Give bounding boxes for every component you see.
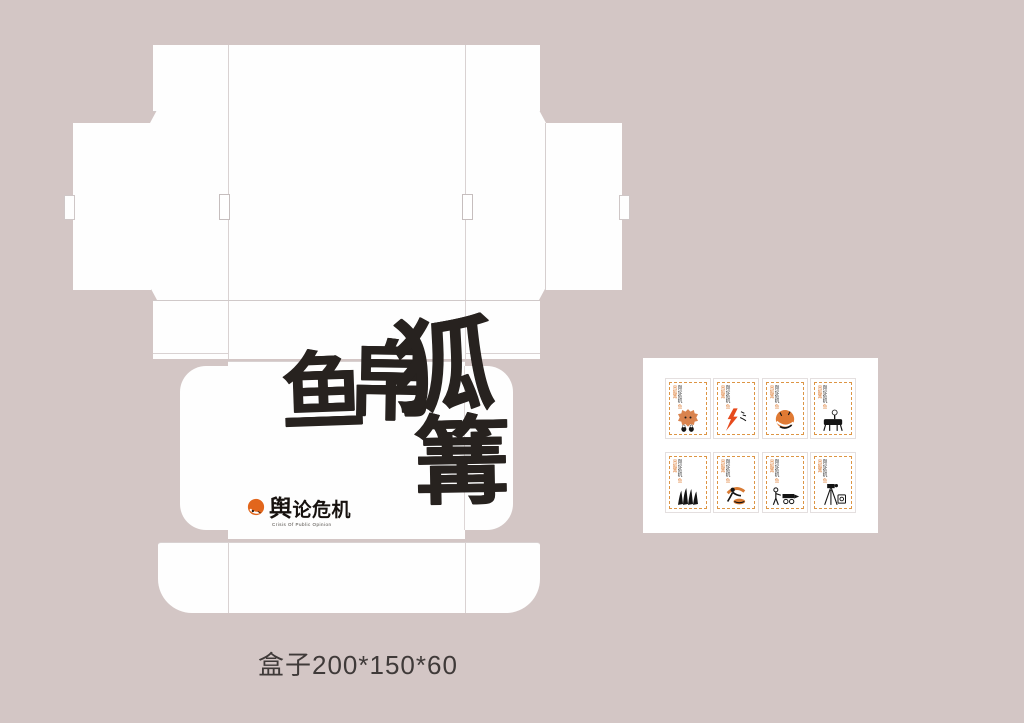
logo-tagline: Crisis Of Public Opinion [272,522,351,527]
fold-line [228,543,229,613]
card-label-primary: 舆论危机 [726,459,731,477]
card-label-primary: 舆论危机 [823,459,828,477]
sticker-card: 舆论危机 鱼帛狐篝 [665,378,711,439]
dieline-lock-slot [219,194,230,220]
raised-hands-icon [673,481,703,507]
card-label-primary: 舆论危机 [775,459,780,477]
card-label: 舆论危机 鱼帛狐篝 [818,459,828,483]
dieline-left-tab [64,195,75,220]
card-label-primary: 舆论危机 [678,385,683,403]
dieline-left-wing [73,123,152,290]
card-label: 舆论危机 鱼帛狐篝 [721,459,731,483]
sticker-sheet: 舆论危机 鱼帛狐篝 舆论危机 鱼帛狐篝 [643,358,878,533]
camera-cart-icon [770,481,800,507]
dieline-right-wing [545,123,622,290]
card-label-primary: 舆论危机 [823,385,828,403]
card-label: 舆论危机 鱼帛狐篝 [673,385,683,409]
card-label-primary: 舆论危机 [775,385,780,403]
fold-line [228,45,229,111]
dimensions-caption: 盒子200*150*60 [258,645,458,682]
card-label: 舆论危机 鱼帛狐篝 [770,385,780,409]
fox-head-with-figures-icon [673,407,703,433]
fold-line [228,301,229,359]
tripod-camera-icon [818,481,848,507]
card-label: 舆论危机 鱼帛狐篝 [770,459,780,483]
fold-line [465,543,466,613]
logo-name: 舆论危机 [269,496,351,521]
dieline-lock-slot [462,194,473,220]
figure-with-fox-icon [721,481,751,507]
dieline-top-flaps [153,45,540,112]
sticker-card: 舆论危机 鱼帛狐篝 [665,452,711,513]
sticker-card: 舆论危机 鱼帛狐篝 [810,378,856,439]
fold-line [465,45,466,111]
artboard: 鱼 帛 狐 篝 舆论危机 Crisis Of Public Opinion 舆论… [0,0,1024,723]
curled-fox-icon [770,407,800,433]
logo-text-block: 舆论危机 Crisis Of Public Opinion [269,496,351,527]
card-label-primary: 舆论危机 [678,459,683,477]
brand-logo: 舆论危机 Crisis Of Public Opinion [247,496,351,527]
dieline-right-tab [619,195,630,220]
calligraphy-char: 篝 [413,413,511,511]
sticker-card: 舆论危机 鱼帛狐篝 [762,378,808,439]
dieline-lid-panel [150,110,546,300]
card-label-primary: 舆论危机 [726,385,731,403]
sticker-card: 舆论危机 鱼帛狐篝 [713,378,759,439]
fox-circle-icon [247,498,265,516]
sticker-card: 舆论危机 鱼帛狐篝 [810,452,856,513]
card-label: 舆论危机 鱼帛狐篝 [673,459,683,483]
lightning-bolt-icon [721,407,751,433]
figure-at-desk-icon [818,407,848,433]
fold-line [153,353,228,354]
sticker-card: 舆论危机 鱼帛狐篝 [713,452,759,513]
card-label: 舆论危机 鱼帛狐篝 [818,385,828,409]
sticker-card: 舆论危机 鱼帛狐篝 [762,452,808,513]
dieline-left-tuck-flap [180,366,230,530]
dieline-bottom-flap [158,542,540,613]
card-label: 舆论危机 鱼帛狐篝 [721,385,731,409]
